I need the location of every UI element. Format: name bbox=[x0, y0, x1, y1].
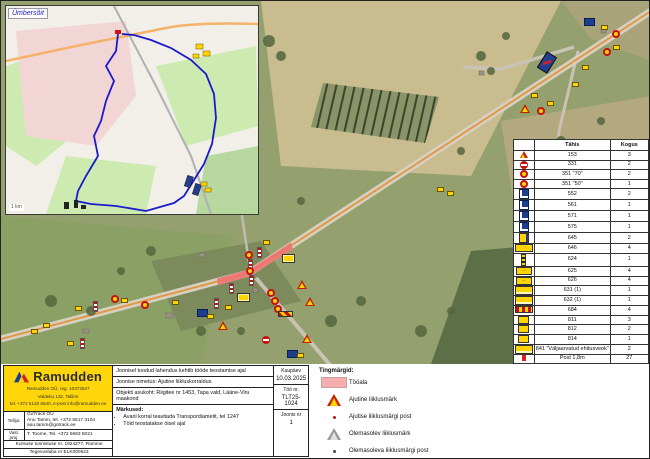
company-address-line1: Ramudden OÜ, reg. 10372547 bbox=[4, 386, 112, 392]
sign-code: 153 bbox=[534, 151, 610, 161]
sign-table-row: 5522 bbox=[514, 189, 649, 200]
striped-post-marker bbox=[257, 247, 262, 258]
work-no-value: TLT25-1024 bbox=[275, 395, 307, 407]
no-entry-sign-marker bbox=[262, 336, 270, 344]
sign-code: 645 bbox=[534, 233, 610, 244]
yellow-board-marker bbox=[225, 305, 232, 310]
red-circle-sign-marker bbox=[537, 107, 545, 115]
sheet-value: 1 bbox=[275, 420, 307, 426]
symbols-legend-label: Olemasolev liiklusmärk bbox=[349, 431, 410, 437]
symbols-legend-items: TööalaAjutine liiklusmärkAjutise liiklus… bbox=[319, 377, 479, 456]
sign-qty: 4 bbox=[610, 266, 648, 276]
sign-qty: 1 bbox=[610, 200, 648, 211]
sign-table-row: 5711 bbox=[514, 211, 649, 222]
certificate-line: Kursuse tunnistuse nr. 1924277, Ramme bbox=[4, 442, 112, 448]
sign-code: 811 bbox=[534, 315, 610, 325]
sign-qty: 2 bbox=[610, 170, 648, 180]
location-row: Objekti asukoht: Riigitee nr 1453, Tapa … bbox=[113, 388, 273, 405]
sign-code: 575 bbox=[534, 222, 610, 233]
title-block: Ramudden Ramudden OÜ, reg. 10372547 Vald… bbox=[3, 365, 309, 457]
sheet-cell: Joonis nr 1 bbox=[274, 410, 308, 456]
certificate-row: Kursuse tunnistuse nr. 1924277, Ramme bbox=[4, 441, 112, 449]
inset-detour-map: Ümbersõit 1 km bbox=[5, 5, 259, 215]
company-address-line3: tel. +372 5130 6540, e-post info@ramudde… bbox=[4, 401, 112, 407]
work-area-swatch-icon bbox=[321, 377, 347, 388]
client-value: GoTrack OÜ Anu Tamm, tel. +372 5617 3104… bbox=[25, 412, 112, 429]
warning-triangle-marker bbox=[302, 334, 312, 343]
sign-qty-column-header: Kogus bbox=[610, 140, 648, 151]
sign-qty: 3 bbox=[610, 151, 648, 161]
sign-table-body: 15333312351 "70"2351 "50"155225611571157… bbox=[514, 151, 649, 393]
sign-qty: 4 bbox=[610, 244, 648, 254]
sign-table-row: 3312 bbox=[514, 160, 649, 170]
drawing-info-column: Joonisel toodud lahendus kehtib tööde te… bbox=[113, 366, 274, 456]
sign-code: 571 bbox=[534, 211, 610, 222]
sign-qty: 2 bbox=[610, 189, 648, 200]
red-circle-sign-marker bbox=[111, 295, 119, 303]
yellow-board-marker bbox=[31, 329, 38, 334]
yellow-blue-icon bbox=[519, 233, 529, 243]
yellow-board-marker bbox=[67, 341, 74, 346]
yellow-text-board-icon bbox=[515, 296, 533, 305]
sign-table-row: 5611 bbox=[514, 200, 649, 211]
yellow-board-large-marker bbox=[237, 293, 250, 302]
sign-code: 561 bbox=[534, 200, 610, 211]
yellow-board-marker bbox=[43, 323, 50, 328]
sign-code: 625 bbox=[534, 266, 610, 276]
sign-code: 626 bbox=[534, 276, 610, 286]
yellow-board-marker bbox=[172, 300, 179, 305]
date-cell: Kuupäev 10.03.2025 bbox=[274, 366, 308, 385]
company-logo-text: Ramudden bbox=[33, 369, 102, 384]
symbols-legend-title: Tingmärgid: bbox=[319, 368, 479, 374]
bottom-panel: Ramudden Ramudden OÜ, reg. 10372547 Vald… bbox=[1, 364, 650, 459]
blue-square-icon bbox=[519, 200, 529, 210]
sign-table-row: 841 "Väljaarvatud ehitusveok"2 bbox=[514, 344, 649, 354]
sign-table-row: Post 1,8m27 bbox=[514, 354, 649, 364]
sign-table-row: 631 (1)1 bbox=[514, 286, 649, 296]
speed-limit-icon bbox=[520, 170, 528, 178]
yellow-board-marker bbox=[582, 65, 589, 70]
responsible-value: T. Toome, Tel. +372 5663 5021 bbox=[25, 432, 112, 438]
striped-post-marker bbox=[93, 301, 98, 312]
sign-qty: 1 bbox=[610, 211, 648, 222]
red-circle-sign-marker bbox=[271, 297, 279, 305]
red-circle-sign-marker bbox=[246, 267, 254, 275]
sign-qty: 1 bbox=[610, 296, 648, 306]
sign-table-row: 6844 bbox=[514, 306, 649, 316]
yellow-board-marker bbox=[263, 240, 270, 245]
symbols-legend-item: Tööala bbox=[319, 377, 479, 388]
sheet-label: Joonis nr bbox=[275, 412, 307, 418]
sign-icon-column-header bbox=[514, 140, 535, 151]
blue-square-icon bbox=[519, 222, 529, 232]
remarks-section: Märkused: Avarii korral teavitada Transp… bbox=[113, 405, 273, 456]
sign-table-row: →6254 bbox=[514, 266, 649, 276]
striped-post-marker bbox=[249, 275, 254, 286]
sign-table-row: 1533 bbox=[514, 151, 649, 161]
no-entry-icon bbox=[520, 161, 528, 169]
sign-qty: 4 bbox=[610, 276, 648, 286]
blue-square-icon bbox=[519, 189, 529, 199]
sign-code: 351 "50" bbox=[534, 179, 610, 189]
warning-triangle-marker bbox=[520, 104, 530, 113]
sign-qty: 1 bbox=[610, 286, 648, 296]
yellow-text-board-icon bbox=[515, 286, 533, 295]
license-line: Tegevusluba nr ELK000623 bbox=[4, 450, 112, 456]
yellow-board-marker bbox=[437, 187, 444, 192]
inset-basemap bbox=[6, 6, 258, 214]
symbols-legend-item: Ajutise liiklusmärgi post bbox=[319, 412, 479, 422]
red-circle-sign-marker bbox=[141, 301, 149, 309]
remarks-title: Märkused: bbox=[116, 407, 270, 413]
sign-qty: 2 bbox=[610, 325, 648, 335]
sign-code: 552 bbox=[534, 189, 610, 200]
yellow-board-marker bbox=[207, 314, 214, 319]
sign-table-row: 6452 bbox=[514, 233, 649, 244]
yellow-text-board-icon bbox=[515, 345, 533, 354]
yellow-wide-icon bbox=[515, 244, 533, 252]
work-no-label: Töö nr. bbox=[275, 387, 307, 393]
red-circle-sign-marker bbox=[267, 289, 275, 297]
sign-code: Post 1,8m bbox=[534, 354, 610, 364]
sign-code: 812 bbox=[534, 325, 610, 335]
existing-sign-triangle-icon bbox=[327, 428, 341, 440]
sign-code: 351 "70" bbox=[534, 170, 610, 180]
yellow-board-marker bbox=[75, 306, 82, 311]
sign-qty: 4 bbox=[610, 306, 648, 316]
sign-table-row: ←6264 bbox=[514, 276, 649, 286]
date-value: 10.03.2025 bbox=[275, 376, 307, 382]
sign-qty: 2 bbox=[610, 344, 648, 354]
symbols-legend: Tingmärgid: TööalaAjutine liiklusmärkAju… bbox=[319, 368, 479, 459]
yellow-board-marker bbox=[547, 101, 554, 106]
remark-item: Avarii korral teavitada Transpordiametit… bbox=[123, 414, 270, 420]
inset-scale-label: 1 km bbox=[9, 204, 24, 211]
temp-sign-post-dot-icon bbox=[333, 416, 336, 419]
speed-limit-icon bbox=[520, 180, 528, 188]
arrow-left-icon: ← bbox=[516, 277, 532, 285]
yellow-board-large-marker bbox=[282, 254, 295, 263]
inset-map-label: Ümbersõit bbox=[8, 8, 48, 19]
client-row: Tellija: GoTrack OÜ Anu Tamm, tel. +372 … bbox=[4, 412, 112, 430]
date-column: Kuupäev 10.03.2025 Töö nr. TLT25-1024 Jo… bbox=[274, 366, 308, 456]
sign-code: 684 bbox=[534, 306, 610, 316]
yellow-board-marker bbox=[297, 353, 304, 358]
remarks-list: Avarii korral teavitada Transpordiametit… bbox=[123, 414, 270, 427]
red-circle-sign-marker bbox=[612, 30, 620, 38]
sign-qty: 1 bbox=[610, 334, 648, 344]
company-logo-box: Ramudden Ramudden OÜ, reg. 10372547 Vald… bbox=[4, 366, 112, 412]
company-column: Ramudden Ramudden OÜ, reg. 10372547 Vald… bbox=[4, 366, 113, 456]
yellow-board-marker bbox=[447, 191, 454, 196]
sign-table-row: 351 "70"2 bbox=[514, 170, 649, 180]
yellow-board-marker bbox=[121, 298, 128, 303]
blue-board-large-marker bbox=[537, 51, 557, 73]
sign-code-column-header: Tähis bbox=[534, 140, 610, 151]
striped-post-marker bbox=[214, 298, 219, 309]
sign-qty: 1 bbox=[610, 179, 648, 189]
sign-code: 841 "Väljaarvatud ehitusveok" bbox=[534, 344, 610, 354]
post-red-icon bbox=[522, 355, 526, 361]
sign-table-row: 351 "50"1 bbox=[514, 179, 649, 189]
sign-table-row: 5751 bbox=[514, 222, 649, 233]
sign-table-row: 8122 bbox=[514, 325, 649, 335]
sign-quantity-table: Tähis Kogus 15333312351 "70"2351 "50"155… bbox=[513, 139, 649, 393]
license-row: Tegevusluba nr ELK000623 bbox=[4, 449, 112, 456]
red-circle-sign-marker bbox=[603, 48, 611, 56]
symbols-legend-label: Tööala bbox=[349, 380, 367, 386]
client-label: Tellija: bbox=[4, 412, 25, 429]
barrier-striped-icon bbox=[515, 306, 533, 313]
sign-code: 632 (1) bbox=[534, 296, 610, 306]
yellow-board-marker bbox=[601, 25, 608, 30]
warning-triangle-marker bbox=[305, 297, 315, 306]
striped-barrier-marker bbox=[278, 311, 293, 317]
post-thin-icon bbox=[521, 254, 526, 266]
yellow-small-icon bbox=[518, 316, 529, 324]
sign-qty: 3 bbox=[610, 315, 648, 325]
striped-post-marker bbox=[80, 338, 85, 349]
sign-code: 631 (1) bbox=[534, 286, 610, 296]
sign-qty: 1 bbox=[610, 222, 648, 233]
note-top-row: Joonisel toodud lahendus kehtib tööde te… bbox=[113, 366, 273, 377]
existing-sign-post-dot-icon bbox=[333, 450, 336, 453]
sign-qty: 27 bbox=[610, 354, 648, 364]
yellow-board-marker bbox=[613, 45, 620, 50]
responsible-row: Vast. proj. T. Toome, Tel. +372 5663 502… bbox=[4, 430, 112, 441]
company-address-line2: Valdeku 132, Tallinn bbox=[4, 394, 112, 400]
warning-triangle-icon bbox=[520, 151, 528, 158]
symbols-legend-label: Ajutine liiklusmärk bbox=[349, 397, 397, 403]
symbols-legend-label: Olemasoleva liiklusmärgi post bbox=[349, 448, 428, 454]
sign-code: 624 bbox=[534, 253, 610, 266]
sign-code: 646 bbox=[534, 244, 610, 254]
symbols-legend-label: Ajutise liiklusmärgi post bbox=[349, 414, 411, 420]
sign-qty: 1 bbox=[610, 253, 648, 266]
remark-item: Töid teostatakse öisel ajal bbox=[123, 421, 270, 427]
ramudden-logo-icon bbox=[14, 371, 30, 383]
yellow-board-marker bbox=[572, 82, 579, 87]
symbols-legend-item: Ajutine liiklusmärk bbox=[319, 394, 479, 406]
symbols-legend-item: Olemasoleva liiklusmärgi post bbox=[319, 446, 479, 456]
warning-triangle-marker bbox=[297, 280, 307, 289]
yellow-small-icon bbox=[518, 335, 529, 343]
arrow-right-icon: → bbox=[516, 267, 532, 275]
sign-code: 331 bbox=[534, 160, 610, 170]
sign-qty: 2 bbox=[610, 160, 648, 170]
work-no-cell: Töö nr. TLT25-1024 bbox=[274, 385, 308, 410]
warning-triangle-marker bbox=[218, 321, 228, 330]
road-closure-marker bbox=[115, 30, 121, 34]
drawing-name-row: Joonise nimetus: Ajutine liikluskorraldu… bbox=[113, 377, 273, 388]
responsible-label: Vast. proj. bbox=[4, 430, 25, 440]
ta-plan-sheet: Ümbersõit 1 km Tähis Kogus 15333312351 "… bbox=[0, 0, 650, 459]
blue-square-icon bbox=[519, 211, 529, 221]
blue-board-marker bbox=[584, 18, 595, 26]
sign-table-row: 8141 bbox=[514, 334, 649, 344]
sign-table-row: 8113 bbox=[514, 315, 649, 325]
sign-table-row: 6241 bbox=[514, 253, 649, 266]
sign-table-row: 632 (1)1 bbox=[514, 296, 649, 306]
temp-sign-triangle-icon bbox=[327, 394, 341, 406]
red-circle-sign-marker bbox=[245, 251, 253, 259]
symbols-legend-item: Olemasolev liiklusmärk bbox=[319, 428, 479, 440]
yellow-small-icon bbox=[518, 325, 529, 333]
sign-code: 814 bbox=[534, 334, 610, 344]
date-label: Kuupäev bbox=[275, 368, 307, 374]
yellow-board-marker bbox=[531, 93, 538, 98]
striped-post-marker bbox=[229, 283, 234, 294]
sign-table-row: 6464 bbox=[514, 244, 649, 254]
sign-qty: 2 bbox=[610, 233, 648, 244]
